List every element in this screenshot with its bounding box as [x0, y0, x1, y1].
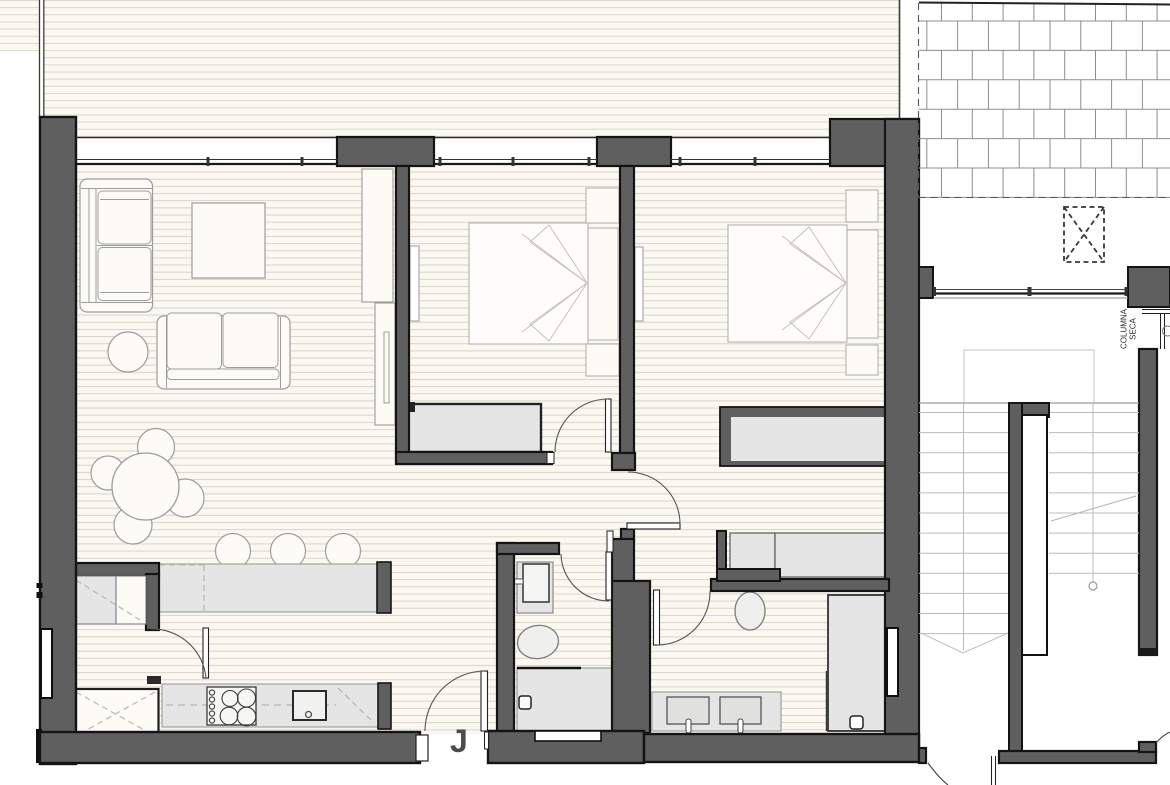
svg-text:J: J: [450, 723, 468, 759]
svg-text:SECA: SECA: [1129, 317, 1138, 339]
svg-text:COLUMNA: COLUMNA: [1120, 308, 1129, 349]
